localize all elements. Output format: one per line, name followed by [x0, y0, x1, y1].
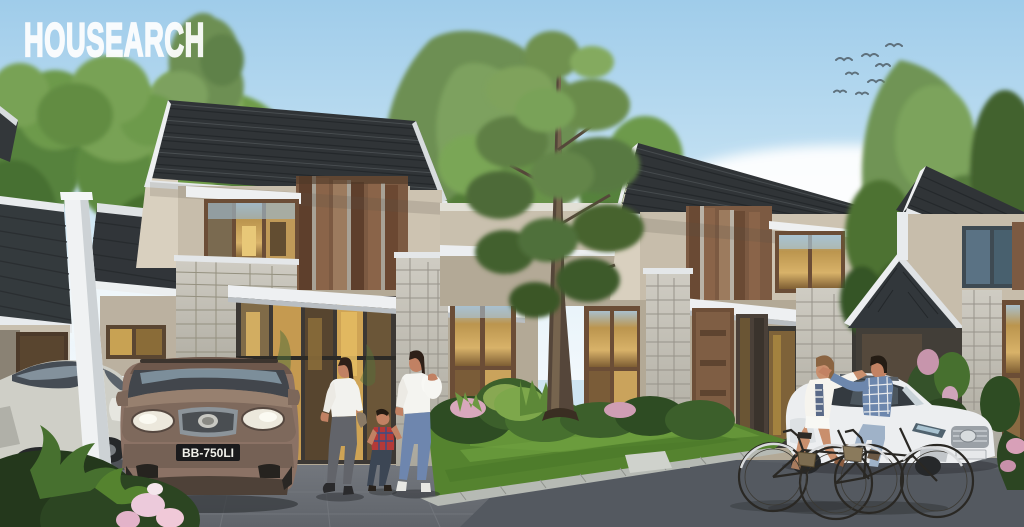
svg-text:HOUSEARCH: HOUSEARCH — [24, 14, 205, 67]
svg-text:BB-750LI: BB-750LI — [182, 446, 234, 460]
